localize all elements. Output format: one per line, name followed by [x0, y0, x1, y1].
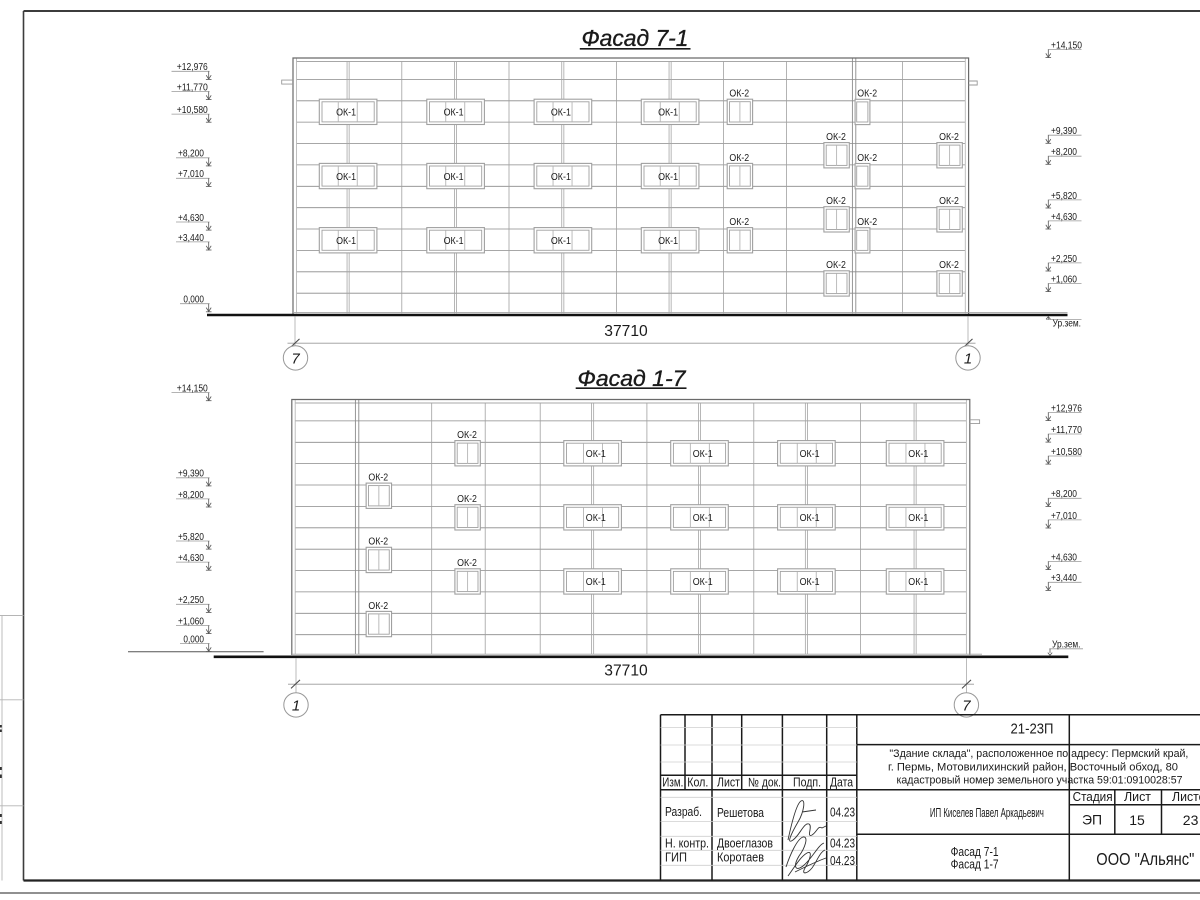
svg-text:+2,250: +2,250 [1051, 254, 1077, 265]
svg-text:ОК-1: ОК-1 [336, 236, 356, 247]
svg-text:ОК-2: ОК-2 [729, 89, 749, 100]
svg-text:Разраб.: Разраб. [665, 805, 702, 819]
svg-text:Решетова: Решетова [717, 806, 764, 820]
svg-text:ОК-2: ОК-2 [457, 558, 477, 569]
svg-text:ОК-1: ОК-1 [800, 577, 820, 588]
svg-text:ОК-1: ОК-1 [693, 449, 713, 460]
svg-text:+5,820: +5,820 [1051, 191, 1077, 202]
svg-text:+12,976: +12,976 [1051, 403, 1082, 414]
svg-text:0,000: 0,000 [183, 634, 204, 645]
svg-text:ОК-2: ОК-2 [826, 132, 846, 143]
svg-text:04.23: 04.23 [830, 854, 855, 868]
svg-text:кадастровый номер земельного у: кадастровый номер земельного участка 59:… [897, 774, 1183, 786]
svg-text:Стадия: Стадия [1073, 790, 1113, 804]
svg-text:ОК-1: ОК-1 [444, 236, 464, 247]
svg-text:Коротаев: Коротаев [717, 851, 764, 865]
svg-text:Кол.: Кол. [687, 776, 708, 790]
svg-text:+11,770: +11,770 [1051, 425, 1082, 436]
svg-text:ОК-2: ОК-2 [939, 260, 959, 271]
svg-text:37710: 37710 [604, 663, 648, 680]
svg-text:+2,250: +2,250 [178, 595, 204, 606]
svg-text:ОК-1: ОК-1 [800, 449, 820, 460]
svg-text:ОК-2: ОК-2 [939, 196, 959, 207]
svg-text:15: 15 [1129, 812, 1145, 828]
svg-text:Листов: Листов [1172, 790, 1200, 804]
svg-text:ОК-1: ОК-1 [908, 577, 928, 588]
svg-text:ОК-2: ОК-2 [368, 601, 388, 612]
svg-text:Лист: Лист [717, 776, 740, 790]
svg-text:ОК-2: ОК-2 [857, 89, 877, 100]
svg-text:ОК-1: ОК-1 [658, 108, 678, 119]
svg-text:Фасад 7-1: Фасад 7-1 [582, 25, 689, 51]
svg-text:ОК-2: ОК-2 [826, 196, 846, 207]
svg-text:ОК-1: ОК-1 [586, 577, 606, 588]
svg-text:ОК-1: ОК-1 [586, 449, 606, 460]
svg-text:ОК-2: ОК-2 [826, 260, 846, 271]
svg-text:Лист: Лист [1124, 790, 1151, 804]
svg-text:ОК-1: ОК-1 [693, 577, 713, 588]
svg-text:+7,010: +7,010 [1051, 511, 1077, 522]
svg-text:ОК-1: ОК-1 [551, 172, 571, 183]
svg-text:ОК-1: ОК-1 [693, 513, 713, 524]
svg-text:7: 7 [291, 350, 300, 367]
svg-text:ОК-1: ОК-1 [336, 172, 356, 183]
svg-text:ГИП: ГИП [665, 851, 687, 865]
svg-text:+8,200: +8,200 [1051, 489, 1077, 500]
svg-text:+14,150: +14,150 [177, 384, 208, 395]
svg-text:04.23: 04.23 [830, 836, 855, 850]
svg-text:04.23: 04.23 [830, 806, 855, 820]
svg-text:+7,010: +7,010 [178, 169, 204, 180]
svg-text:ОК-2: ОК-2 [857, 217, 877, 228]
svg-text:+9,390: +9,390 [1051, 126, 1077, 137]
svg-text:37710: 37710 [604, 323, 648, 340]
svg-text:ЭП: ЭП [1082, 812, 1102, 828]
svg-text:ОК-2: ОК-2 [457, 430, 477, 441]
svg-text:+10,580: +10,580 [1051, 447, 1082, 458]
svg-text:ОК-1: ОК-1 [551, 108, 571, 119]
svg-text:+8,200: +8,200 [178, 490, 204, 501]
svg-text:+10,580: +10,580 [177, 105, 208, 116]
svg-text:Ур.зем.: Ур.зем. [1053, 319, 1082, 330]
svg-text:+8,200: +8,200 [1051, 147, 1077, 158]
svg-text:ОК-2: ОК-2 [729, 153, 749, 164]
svg-text:ОК-2: ОК-2 [729, 217, 749, 228]
svg-text:Подп.: Подп. [793, 776, 821, 790]
svg-text:ОК-1: ОК-1 [800, 513, 820, 524]
svg-text:+1,060: +1,060 [178, 616, 204, 627]
svg-text:+14,150: +14,150 [1051, 40, 1082, 51]
svg-text:+8,200: +8,200 [178, 149, 204, 160]
svg-text:+4,630: +4,630 [1051, 552, 1077, 563]
svg-text:ОК-1: ОК-1 [336, 108, 356, 119]
svg-text:1: 1 [964, 350, 972, 367]
svg-text:ОК-2: ОК-2 [857, 153, 877, 164]
svg-text:23: 23 [1183, 812, 1199, 828]
svg-text:Двоеглазов: Двоеглазов [717, 836, 773, 850]
svg-text:Ур.зем.: Ур.зем. [1052, 639, 1081, 650]
svg-text:+12,976: +12,976 [177, 62, 208, 73]
svg-text:ОК-1: ОК-1 [658, 172, 678, 183]
svg-text:ОК-1: ОК-1 [908, 513, 928, 524]
svg-text:ОК-1: ОК-1 [551, 236, 571, 247]
svg-text:1: 1 [292, 697, 300, 714]
svg-text:+11,770: +11,770 [177, 82, 208, 93]
svg-text:"Здание склада", расположенное: "Здание склада", расположенное по адресу… [889, 748, 1188, 760]
svg-text:+5,820: +5,820 [178, 532, 204, 543]
svg-text:Н. контр.: Н. контр. [665, 836, 709, 850]
svg-text:+3,440: +3,440 [178, 233, 204, 244]
svg-text:ОК-1: ОК-1 [444, 108, 464, 119]
svg-text:ОК-1: ОК-1 [444, 172, 464, 183]
svg-text:+4,630: +4,630 [1051, 212, 1077, 223]
svg-text:г. Пермь, Мотовилихинский райо: г. Пермь, Мотовилихинский район, Восточн… [888, 762, 1178, 774]
svg-text:+4,630: +4,630 [178, 553, 204, 564]
svg-text:Фасад 1-7: Фасад 1-7 [951, 857, 999, 871]
svg-text:+1,060: +1,060 [1051, 274, 1077, 285]
svg-text:ООО "Альянс": ООО "Альянс" [1096, 849, 1194, 869]
svg-text:№ док.: № док. [748, 776, 781, 790]
svg-text:+4,630: +4,630 [178, 213, 204, 224]
svg-text:ОК-2: ОК-2 [457, 494, 477, 505]
svg-text:ОК-2: ОК-2 [939, 132, 959, 143]
svg-text:ОК-1: ОК-1 [658, 236, 678, 247]
svg-text:ОК-1: ОК-1 [908, 449, 928, 460]
svg-text:21-23П: 21-23П [1011, 721, 1054, 737]
svg-text:ИП Киселев Павел Аркадьевич: ИП Киселев Павел Аркадьевич [930, 806, 1044, 820]
svg-text:ОК-2: ОК-2 [368, 537, 388, 548]
svg-text:Изм.: Изм. [662, 776, 683, 790]
svg-text:Дата: Дата [830, 776, 853, 790]
svg-text:7: 7 [962, 697, 971, 714]
svg-text:ОК-1: ОК-1 [586, 513, 606, 524]
svg-text:0,000: 0,000 [183, 295, 204, 306]
svg-text:+3,440: +3,440 [1051, 573, 1077, 584]
svg-text:ОК-2: ОК-2 [368, 473, 388, 484]
svg-text:+9,390: +9,390 [178, 469, 204, 480]
